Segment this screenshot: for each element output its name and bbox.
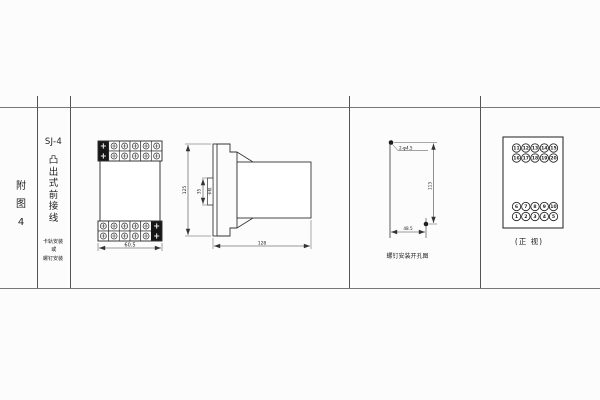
height-dimension-label: 125 [182, 186, 188, 195]
depth-dimension: 128 [213, 220, 311, 249]
terminal-number: 15 [550, 146, 556, 152]
terminal-screw [141, 141, 152, 151]
terminal-number: 19 [541, 156, 547, 162]
mount-note: 卡轨安装 或 螺钉安装 [42, 238, 64, 264]
terminal-number: 9 [543, 204, 546, 210]
terminal-number: 10 [550, 204, 556, 210]
horizontal-hole-dimension-label: 48.5 [403, 226, 413, 231]
relay-body-outline [100, 161, 160, 221]
terminal-number: 1 [515, 214, 518, 220]
style-char: 前 [49, 190, 59, 202]
table-rule-v2 [70, 96, 71, 288]
horizontal-hole-dimension: 48.5 [391, 226, 425, 232]
terminal-screw [119, 231, 130, 241]
terminal-number: 17 [523, 156, 529, 162]
terminal-screw-dark [151, 231, 162, 241]
din-rail-label: 卡轨 [206, 188, 212, 196]
terminal-screw [109, 231, 120, 241]
width-dimension-label: 60.5 [124, 243, 135, 249]
figure-index-char: 图 [16, 196, 26, 214]
terminal-number: 20 [550, 156, 556, 162]
table-rule-v3 [349, 96, 350, 288]
terminal-screw [119, 151, 130, 161]
mount-note-line: 或 [51, 246, 56, 254]
terminal-layout-drawing: 11 12 13 14 15 16 17 18 19 20 6 7 8 9 10… [498, 132, 570, 232]
style-char: 出 [49, 167, 59, 179]
relay-front-view-drawing: 60.5 [94, 137, 172, 257]
figure-index-char: 4 [18, 214, 24, 232]
depth-dimension-label: 128 [258, 240, 267, 246]
terminal-screw-dark [98, 141, 109, 151]
terminal-number: 4 [543, 214, 546, 220]
side-profile-outline [213, 144, 311, 236]
style-label: 凸 出 式 前 接 线 [49, 155, 59, 225]
terminal-screw [130, 151, 141, 161]
mount-note-line: 卡轨安装 [43, 238, 63, 246]
din-rail-clip: 卡轨 [206, 178, 213, 205]
terminal-screw [151, 141, 162, 151]
terminal-screw [109, 221, 120, 231]
model-label: SJ-4 [45, 137, 62, 147]
table-rule-v4 [480, 96, 481, 288]
terminal-number: 3 [533, 214, 536, 220]
terminal-screw [141, 221, 152, 231]
terminal-number: 18 [532, 156, 538, 162]
terminal-number: 14 [541, 146, 547, 152]
terminal-screw-dark [151, 221, 162, 231]
style-char: 式 [49, 178, 59, 190]
terminal-screw [130, 221, 141, 231]
drawing-sheet: 附 图 4 SJ-4 凸 出 式 前 接 线 卡轨安装 或 螺钉安装 [0, 0, 600, 400]
terminal-screw [141, 231, 152, 241]
terminal-screw-dark [98, 151, 109, 161]
terminal-number: 5 [552, 214, 555, 220]
figure-index-char: 附 [16, 178, 26, 196]
terminal-screw [98, 231, 109, 241]
terminal-number: 11 [513, 146, 519, 152]
width-dimension: 60.5 [98, 243, 162, 252]
vertical-hole-dimension: 113 [394, 143, 437, 225]
hole-callout: 2-φ4.5 [393, 145, 429, 151]
terminal-screw [109, 151, 120, 161]
bottom-terminal-strip [98, 221, 162, 241]
terminal-number: 16 [513, 156, 519, 162]
drill-diagram-caption: 螺钉安装开孔图 [370, 251, 445, 260]
terminal-screw [130, 141, 141, 151]
terminal-screw [98, 221, 109, 231]
top-terminal-strip [98, 141, 162, 161]
table-rule-bottom [0, 288, 600, 289]
terminal-number: 8 [533, 204, 536, 210]
vertical-hole-dimension-label: 113 [427, 182, 432, 190]
terminal-screw [119, 221, 130, 231]
terminal-number: 6 [515, 204, 518, 210]
terminal-number: 13 [532, 146, 538, 152]
title-block: SJ-4 凸 出 式 前 接 线 卡轨安装 或 螺钉安装 [38, 137, 69, 263]
rail-dimension-label: 35 [196, 189, 201, 195]
figure-index-label: 附 图 4 [8, 178, 34, 232]
terminal-screw [119, 141, 130, 151]
style-char: 线 [49, 213, 59, 225]
terminal-screw [130, 231, 141, 241]
terminal-screw [141, 151, 152, 161]
terminal-screw [151, 151, 162, 161]
terminal-number: 7 [524, 204, 527, 210]
terminal-number: 12 [523, 146, 529, 152]
drill-hole-diagram: 2-φ4.5 113 48.5 [372, 134, 452, 244]
mount-note-line: 螺钉安装 [43, 255, 63, 263]
style-char: 凸 [49, 155, 59, 167]
table-rule-top [0, 107, 600, 108]
mounting-hole-top [389, 140, 394, 145]
hole-callout-label: 2-φ4.5 [399, 145, 413, 150]
terminal-number: 2 [524, 214, 527, 220]
terminal-view-caption: (正 视) [493, 236, 565, 247]
style-char: 接 [49, 201, 59, 213]
terminal-screw [109, 141, 120, 151]
relay-side-view-drawing: 卡轨 35 125 128 [183, 122, 318, 255]
